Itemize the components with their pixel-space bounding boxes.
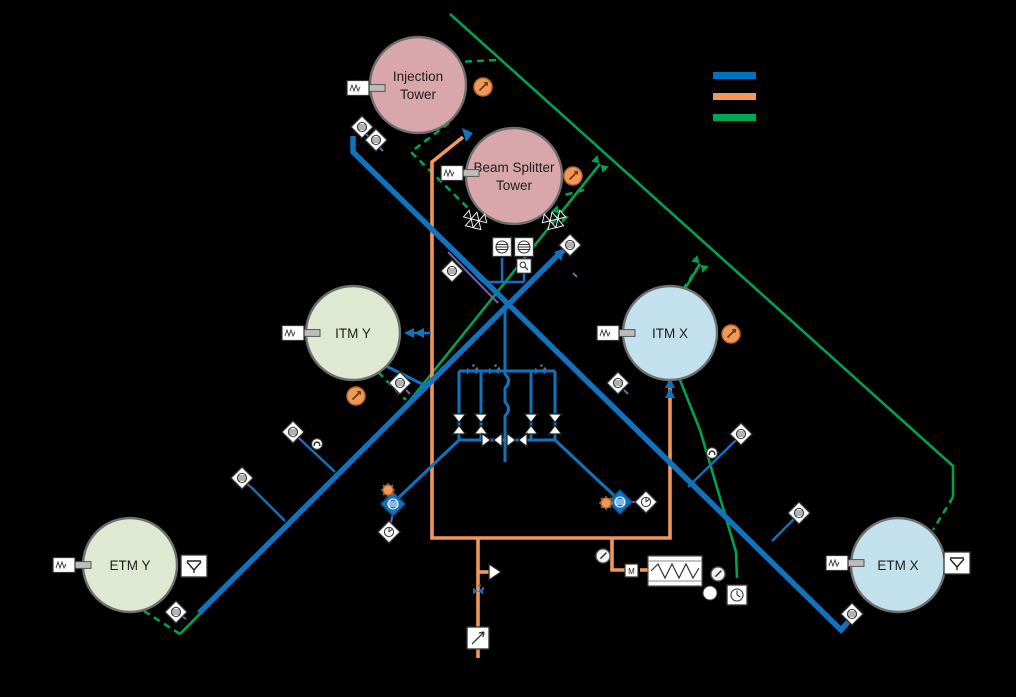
tower-injection-label-1: Injection bbox=[393, 69, 443, 84]
gauge-icon bbox=[596, 549, 610, 563]
filter-box bbox=[648, 556, 702, 586]
ion-pump-icon bbox=[841, 603, 863, 625]
tower-itmx-label: ITM X bbox=[652, 326, 688, 341]
green-dashed-etmx bbox=[933, 497, 953, 530]
sensor-icon bbox=[312, 439, 323, 450]
central-valve-manifold bbox=[393, 305, 620, 503]
green-vent-network bbox=[144, 14, 953, 634]
orange-filter-branch bbox=[612, 538, 625, 570]
pump-cart-icon bbox=[467, 627, 489, 649]
turbo-pump-icon bbox=[515, 238, 534, 257]
green-arm-y-line bbox=[180, 164, 600, 634]
air-arrow-injection bbox=[462, 128, 473, 142]
tower-itmy-label: ITM Y bbox=[335, 326, 371, 341]
green-dashed-injection bbox=[458, 60, 496, 62]
small-valve-icon bbox=[467, 364, 478, 374]
towers: Injection Tower Beam Splitter Tower ITM … bbox=[83, 37, 945, 612]
tower-etmy-label: ETM Y bbox=[109, 558, 150, 573]
tower-injection-label-2: Tower bbox=[400, 87, 437, 102]
sensor-icon bbox=[707, 448, 718, 459]
turbo-pump-icon bbox=[493, 238, 512, 257]
pressure-gauge-icon bbox=[564, 167, 582, 185]
legend-orange-swatch bbox=[713, 93, 756, 100]
vent-valve-icon bbox=[181, 555, 207, 577]
legend bbox=[713, 72, 756, 121]
pump-circle-icon bbox=[703, 586, 717, 600]
green-dashed-itmx bbox=[684, 264, 700, 288]
check-valve-icon bbox=[489, 564, 501, 580]
itmy-arrow bbox=[404, 328, 414, 338]
feedthroughs bbox=[53, 81, 864, 573]
diagram-canvas: Injection Tower Beam Splitter Tower ITM … bbox=[0, 0, 1016, 697]
pressure-gauge-icon bbox=[722, 325, 740, 343]
rga-icon bbox=[517, 259, 531, 273]
ion-pump-icon bbox=[165, 601, 187, 623]
timer-valve-icon bbox=[635, 491, 657, 513]
small-valve-icon bbox=[489, 364, 500, 374]
tower-etm-x: ETM X bbox=[851, 518, 945, 612]
motor-valve: M bbox=[625, 564, 638, 577]
clock-pump-icon bbox=[727, 585, 747, 605]
purple-pump-links bbox=[391, 502, 635, 523]
legend-green-swatch bbox=[713, 114, 756, 121]
scroll-pump-icon bbox=[599, 496, 613, 510]
pressure-gauge-icon bbox=[474, 78, 492, 96]
tower-etmx-label: ETM X bbox=[877, 558, 918, 573]
pressure-gauge-icon bbox=[347, 387, 365, 405]
motor-valve-label: M bbox=[628, 567, 635, 576]
tower-beam-splitter: Beam Splitter Tower bbox=[466, 128, 562, 224]
tower-itm-x: ITM X bbox=[623, 286, 717, 380]
tower-bs-label-2: Tower bbox=[496, 178, 533, 193]
tower-etm-y: ETM Y bbox=[83, 518, 177, 612]
vent-valve-icon bbox=[944, 552, 970, 574]
manifold-pump-drops bbox=[393, 440, 620, 503]
vacuum-system-diagram: Injection Tower Beam Splitter Tower ITM … bbox=[0, 0, 1016, 697]
gauge-icon bbox=[711, 567, 725, 581]
itmx-arrow bbox=[665, 388, 675, 398]
green-dashed-bs bbox=[561, 190, 584, 196]
tower-bs-circle bbox=[466, 128, 562, 224]
tower-bs-label-1: Beam Splitter bbox=[473, 160, 555, 175]
small-valve-icon bbox=[535, 364, 546, 374]
itmy-arrow bbox=[414, 328, 424, 338]
legend-blue-swatch bbox=[713, 72, 756, 79]
scroll-pump-icon bbox=[381, 483, 395, 497]
timer-valve-icon bbox=[378, 521, 400, 543]
